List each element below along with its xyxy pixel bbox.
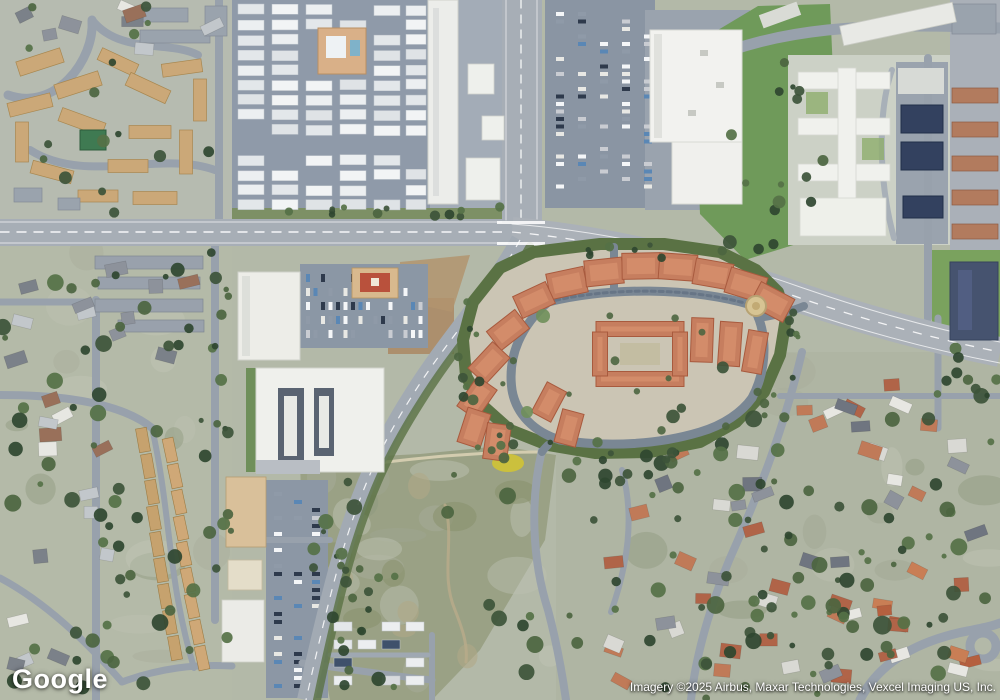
imagery-attribution: Imagery ©2025 Airbus, Maxar Technologies… bbox=[630, 680, 996, 694]
map-viewport[interactable]: Google Imagery ©2025 Airbus, Maxar Techn… bbox=[0, 0, 1000, 700]
google-logo[interactable]: Google bbox=[12, 664, 108, 695]
satellite-imagery[interactable] bbox=[0, 0, 1000, 700]
